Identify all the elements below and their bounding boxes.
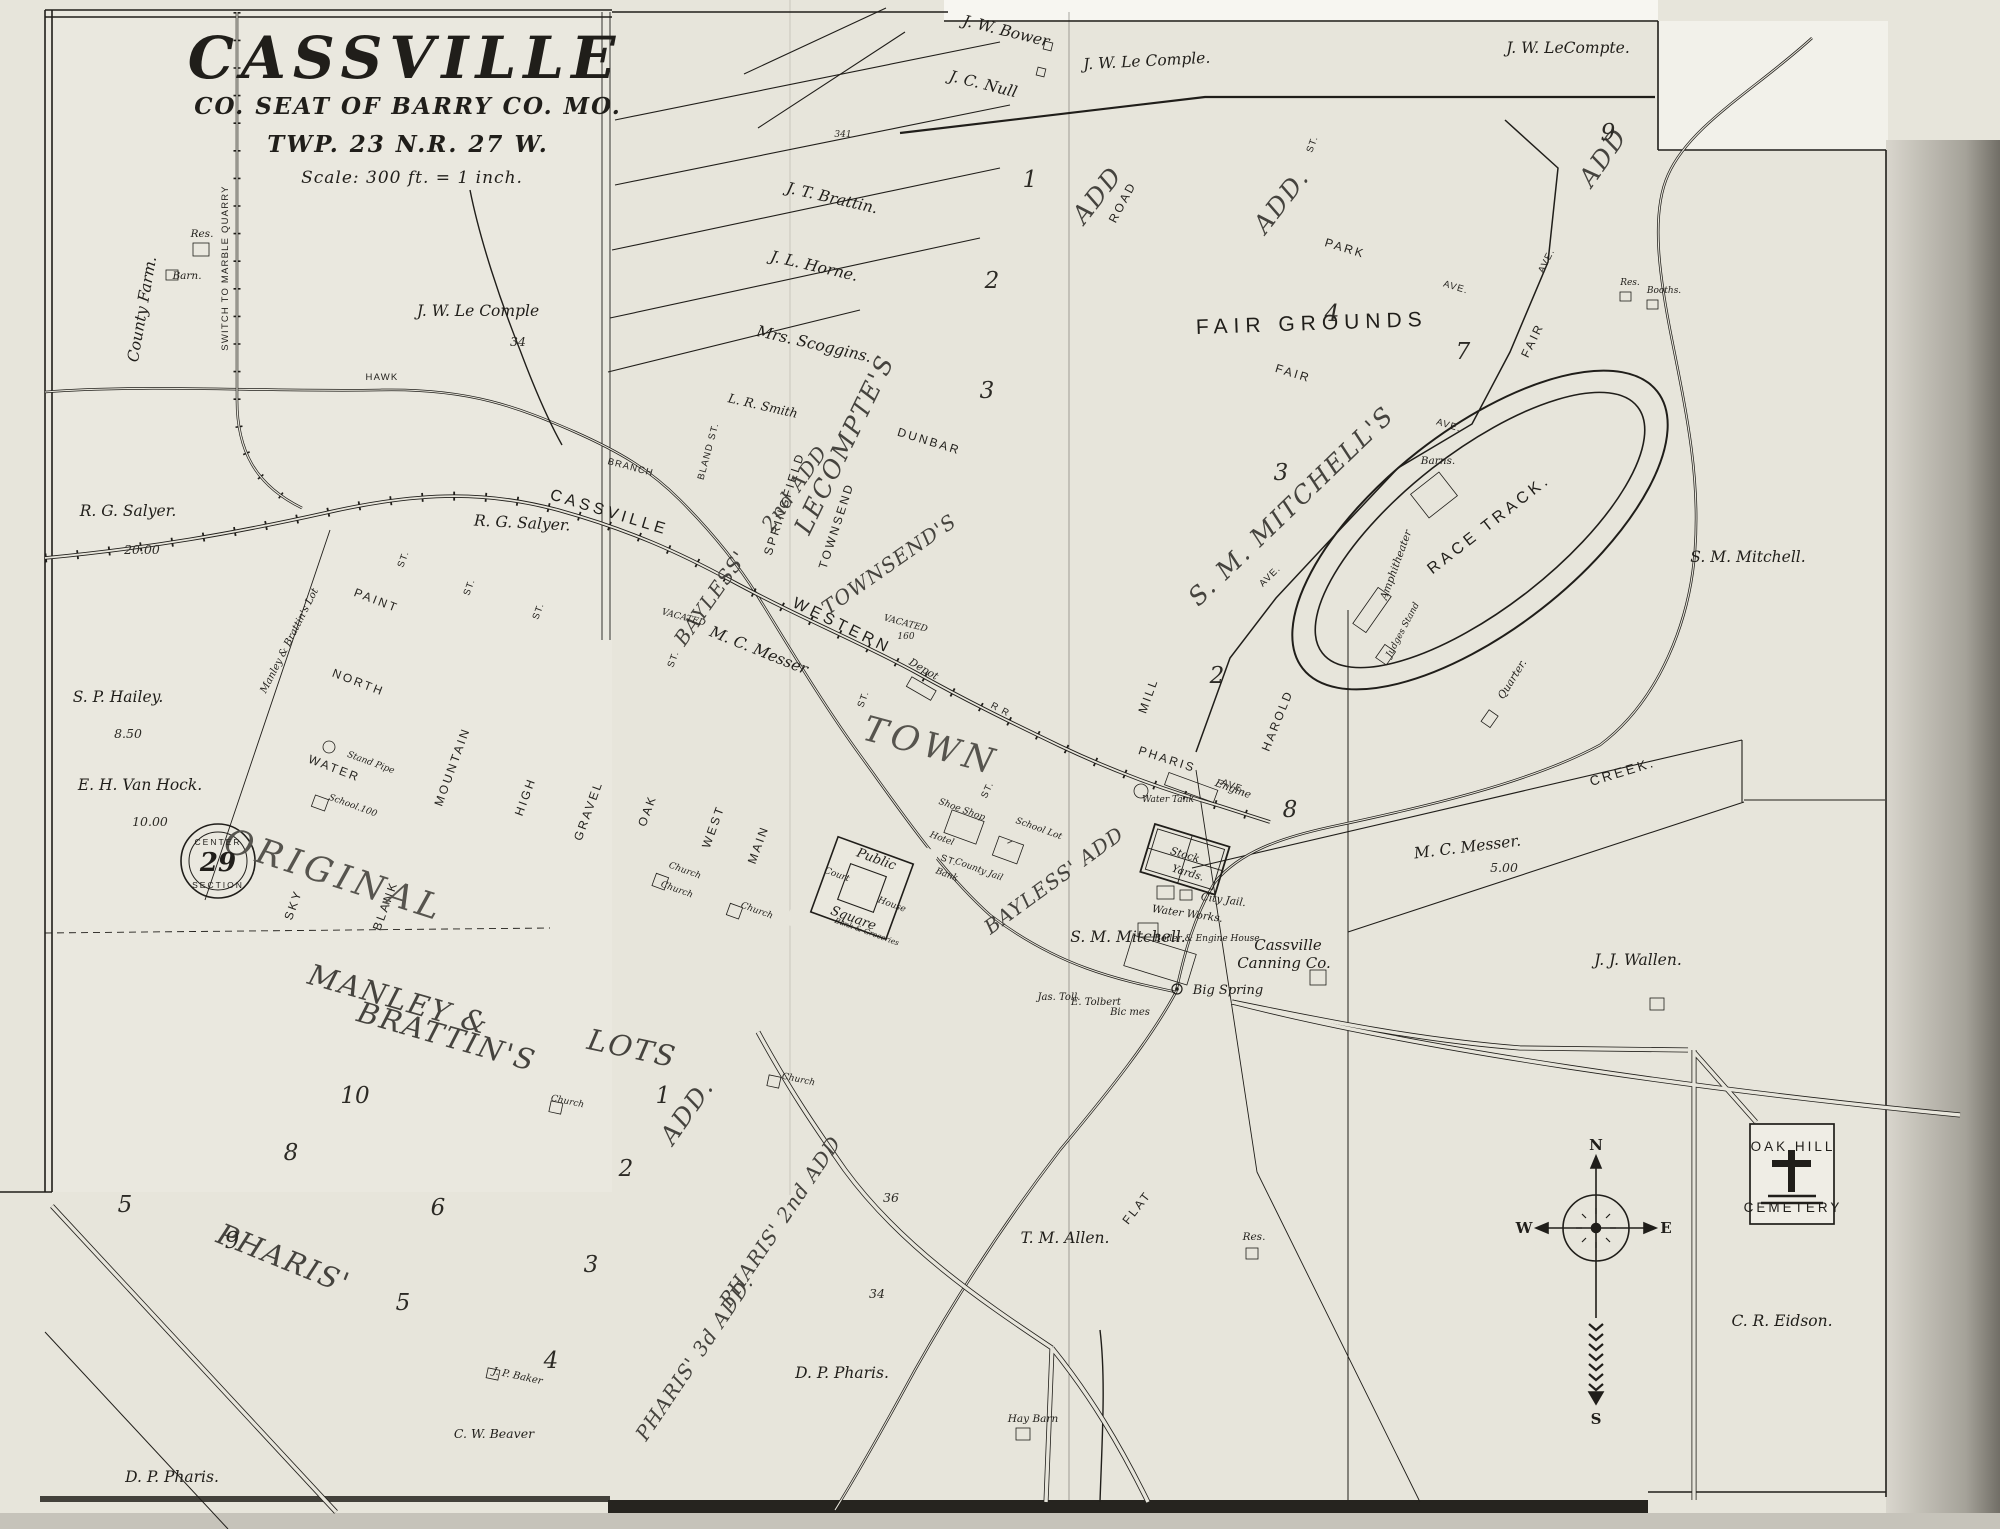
feature-label: Barn.	[171, 270, 201, 282]
church-building	[767, 1075, 781, 1088]
feature-label: Hay Barn	[1007, 1413, 1059, 1425]
parcel-number: 34	[510, 334, 526, 349]
creek-label: HAWK	[366, 372, 399, 383]
block-number: 3	[980, 378, 995, 404]
cemetery-label: CEMETERY	[1744, 1200, 1843, 1215]
block-number: 9	[1601, 120, 1616, 146]
owner-label: D. P. Pharis.	[124, 1468, 219, 1486]
parcel-number: 341	[834, 130, 851, 140]
compass-west-label: W	[1515, 1219, 1534, 1237]
block-number: 4	[1324, 301, 1340, 327]
hay-barn-building	[1016, 1428, 1030, 1440]
feature-label: Res.	[1242, 1231, 1266, 1243]
feature-label: Big Spring	[1192, 983, 1263, 998]
owner-label: E. H. Van Hock.	[77, 776, 202, 794]
block-number: 7	[1456, 339, 1471, 365]
feature-label: Canning Co.	[1237, 954, 1331, 972]
residence-building	[193, 243, 209, 256]
feature-label: Res.	[190, 228, 214, 240]
owner-label: J. W. Le Comple	[414, 302, 539, 320]
owner-label: C. W. Beaver	[454, 1426, 535, 1441]
block-number: 8	[284, 1140, 299, 1166]
owner-label: C. R. Eidson.	[1731, 1312, 1832, 1330]
stamp-top-label: CENTER	[195, 837, 242, 847]
plat-map: CASSVILLE CO. SEAT OF BARRY CO. MO. TWP.…	[0, 0, 2000, 1529]
block-number: 5	[118, 1192, 133, 1218]
feature-label: Barns.	[1420, 455, 1455, 467]
owner-label: S. P. Hailey.	[73, 688, 164, 706]
acreage-label: 10.00	[132, 814, 168, 829]
acreage-label: 8.50	[114, 726, 142, 741]
block-number: 3	[584, 1252, 599, 1278]
feature-label: Boiler & Engine House	[1153, 934, 1259, 944]
feature-label: Res.	[1619, 278, 1640, 288]
parcel-number: 34	[869, 1286, 885, 1301]
compass-north-label: N	[1589, 1136, 1603, 1154]
compass-east-label: E	[1660, 1219, 1671, 1237]
canning-building	[1310, 970, 1326, 985]
cross-icon	[1772, 1160, 1811, 1167]
owner-label: D. P. Pharis.	[794, 1364, 889, 1382]
acreage-label: 20.00	[123, 542, 160, 557]
right-scan-band	[1886, 140, 2000, 1529]
owner-label: J. W. LeCompte.	[1503, 39, 1630, 57]
block-number: 9	[225, 1228, 240, 1254]
stand-pipe-symbol	[323, 741, 335, 753]
owner-label: Bic mes	[1109, 1007, 1150, 1018]
block-number: 1	[1023, 167, 1038, 193]
owner-label: T. M. Allen.	[1021, 1229, 1110, 1247]
map-scale: Scale: 300 ft. = 1 inch.	[301, 168, 523, 188]
parcel-number: 36	[883, 1190, 899, 1205]
block-number: 6	[431, 1195, 446, 1221]
map-title: CASSVILLE	[188, 24, 623, 92]
bottom-gray-strip	[0, 1513, 2000, 1529]
bottom-edge-band	[608, 1500, 1648, 1513]
top-margin-strip	[944, 0, 1658, 20]
residence-building	[1246, 1248, 1258, 1259]
stamp-section-number: 29	[199, 848, 236, 878]
plat-map-canvas: CASSVILLE CO. SEAT OF BARRY CO. MO. TWP.…	[0, 0, 2000, 1529]
feature-label: Booths.	[1646, 286, 1681, 296]
block-number: 2	[1209, 663, 1225, 689]
top-right-margin	[1658, 21, 1888, 150]
acreage-label: 5.00	[1490, 860, 1518, 875]
block-number: 2	[618, 1156, 634, 1182]
railroad-switch-label: SWITCH TO MARBLE QUARRY	[220, 185, 231, 350]
block-number: 8	[1283, 797, 1298, 823]
block-number: 10	[340, 1083, 369, 1109]
feature-label: Water Tank	[1142, 795, 1194, 805]
map-township: TWP. 23 N.R. 27 W.	[267, 131, 548, 158]
feature-label: Cassville	[1254, 936, 1322, 954]
stamp-bottom-label: SECTION	[192, 880, 244, 890]
block-number: 5	[396, 1290, 411, 1316]
cemetery-label: OAK HILL	[1751, 1139, 1836, 1154]
owner-label: J. J. Wallen.	[1591, 951, 1682, 969]
compass-south-label: S	[1591, 1410, 1602, 1428]
map-subtitle: CO. SEAT OF BARRY CO. MO.	[194, 93, 622, 120]
block-number: 2	[984, 268, 1000, 294]
block-number: 3	[1274, 460, 1289, 486]
cross-icon	[1788, 1150, 1795, 1192]
block-number: 1	[656, 1083, 671, 1109]
parcel-number: 160	[897, 632, 914, 642]
owner-label: S. M. Mitchell.	[1690, 548, 1805, 566]
owner-label: R. G. Salyer.	[79, 502, 177, 520]
block-number: 4	[543, 1348, 559, 1374]
